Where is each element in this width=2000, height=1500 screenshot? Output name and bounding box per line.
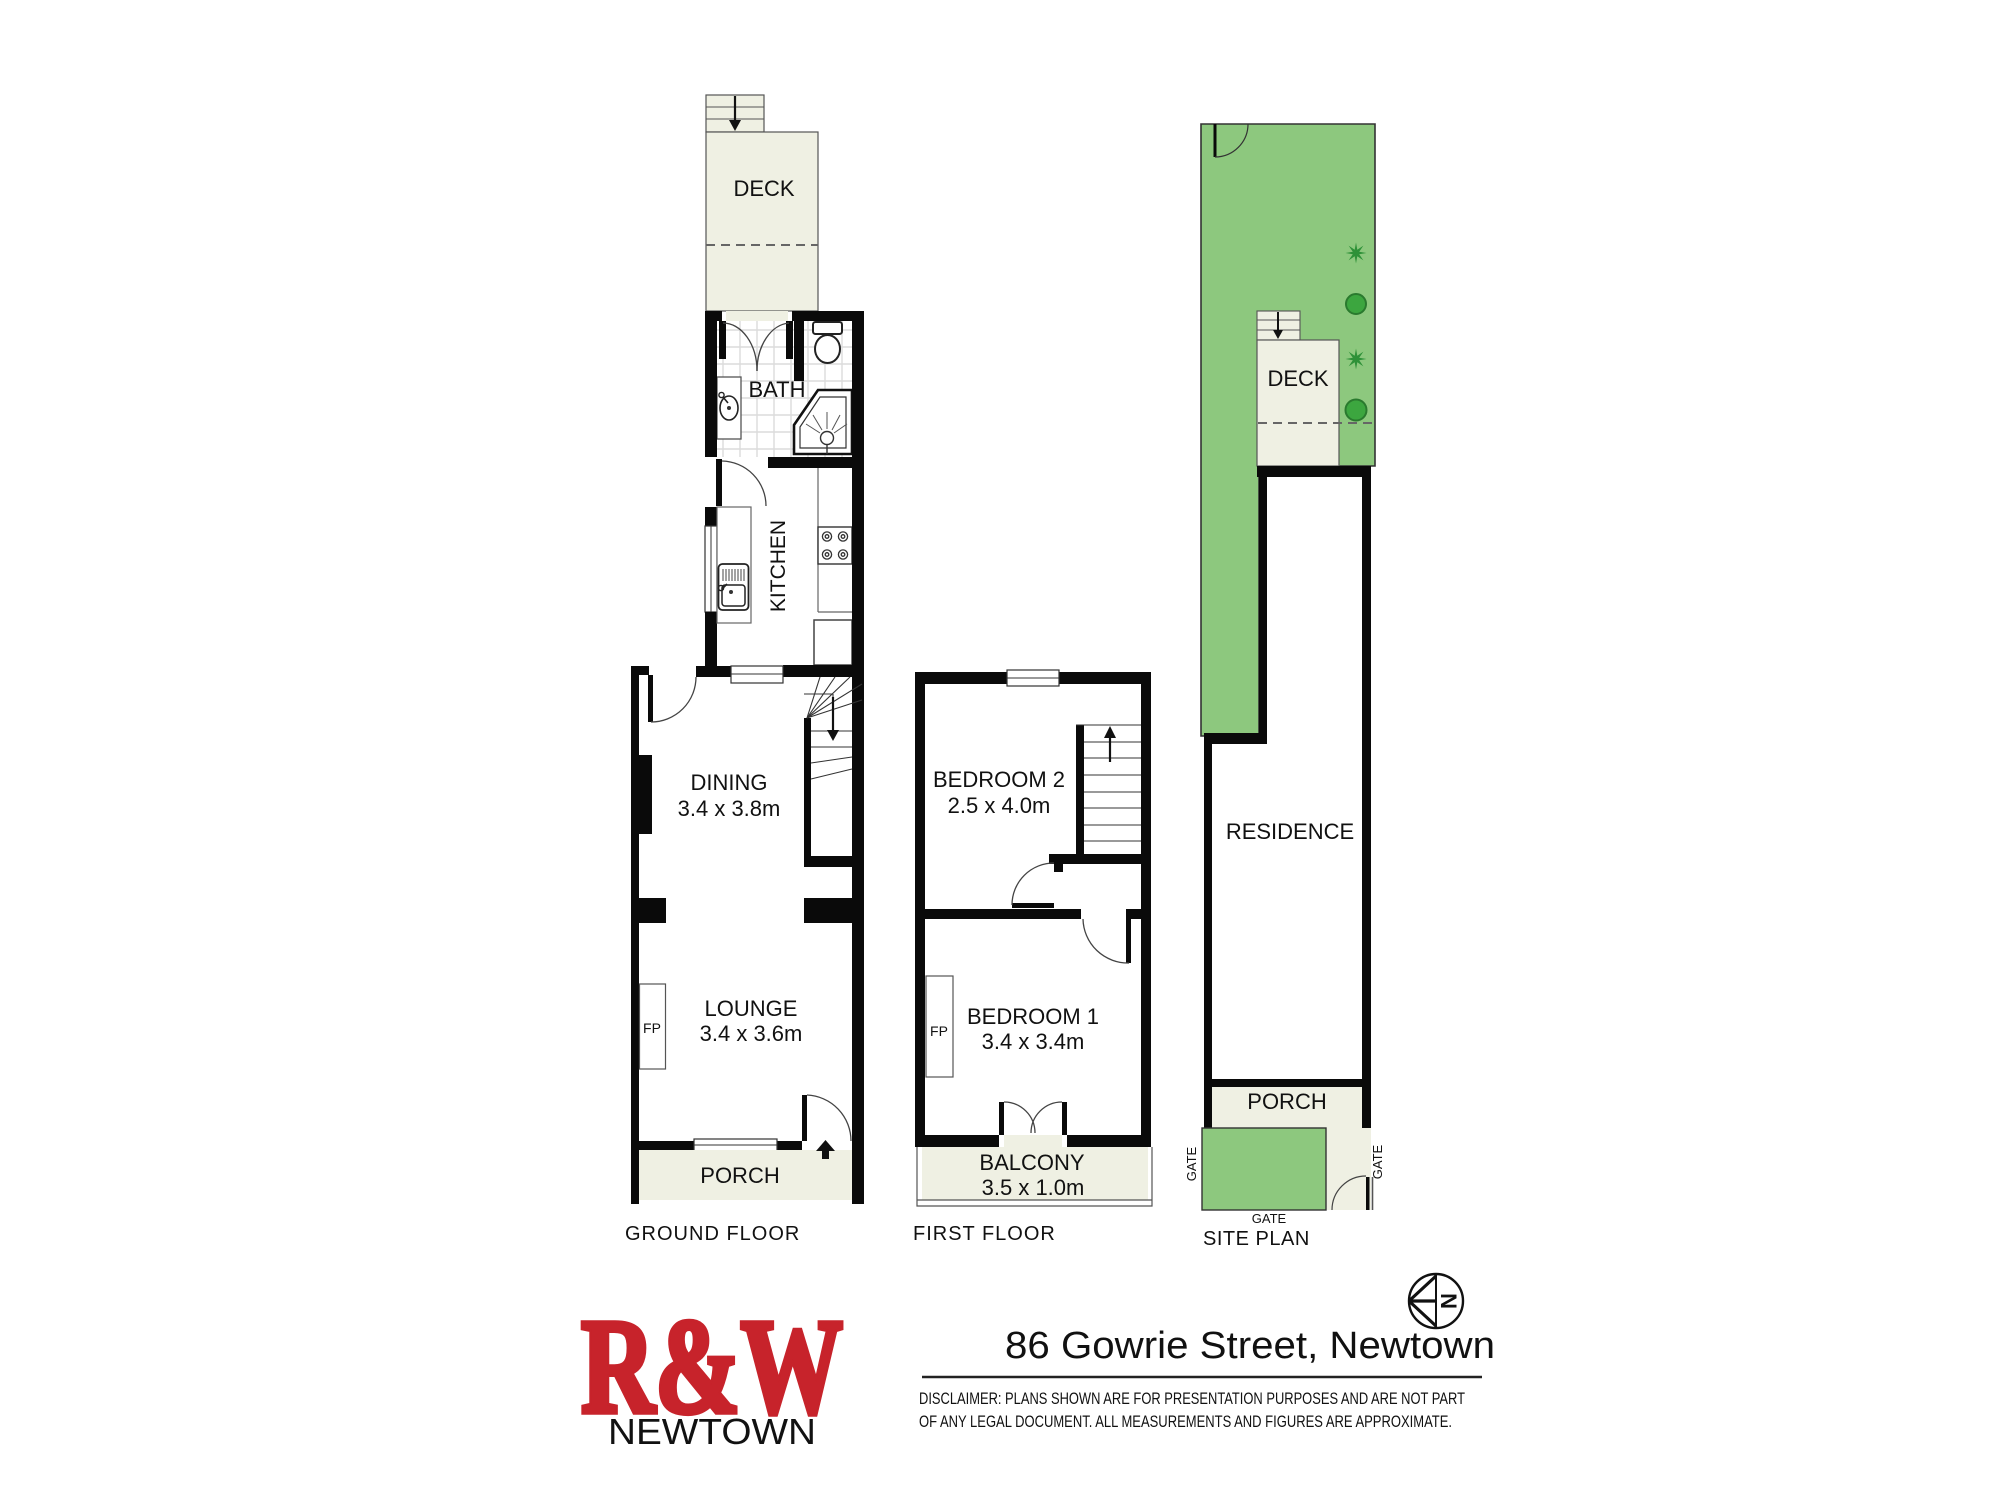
svg-text:BEDROOM 1: BEDROOM 1 [967, 1004, 1099, 1029]
svg-text:FP: FP [643, 1020, 661, 1036]
svg-text:KITCHEN: KITCHEN [767, 520, 790, 612]
svg-text:PORCH: PORCH [1247, 1089, 1326, 1114]
svg-text:PORCH: PORCH [700, 1163, 779, 1188]
svg-text:3.4 x 3.6m: 3.4 x 3.6m [700, 1021, 803, 1046]
svg-text:FP: FP [930, 1023, 948, 1039]
svg-text:RESIDENCE: RESIDENCE [1226, 819, 1354, 844]
svg-text:NEWTOWN: NEWTOWN [608, 1411, 816, 1452]
svg-text:BEDROOM 2: BEDROOM 2 [933, 767, 1065, 792]
svg-text:86 Gowrie Street, Newtown: 86 Gowrie Street, Newtown [1005, 1325, 1495, 1367]
svg-text:BATH: BATH [748, 377, 805, 402]
svg-text:FIRST FLOOR: FIRST FLOOR [913, 1223, 1056, 1245]
svg-text:DECK: DECK [1267, 366, 1328, 391]
svg-text:GATE: GATE [1370, 1144, 1385, 1179]
svg-text:LOUNGE: LOUNGE [705, 996, 798, 1021]
svg-text:3.4 x 3.8m: 3.4 x 3.8m [678, 796, 781, 821]
svg-text:3.5 x 1.0m: 3.5 x 1.0m [982, 1175, 1085, 1200]
svg-text:2.5 x 4.0m: 2.5 x 4.0m [948, 793, 1051, 818]
svg-text:BALCONY: BALCONY [979, 1150, 1084, 1175]
svg-text:GATE: GATE [1252, 1211, 1287, 1226]
svg-text:OF ANY LEGAL DOCUMENT. ALL MEA: OF ANY LEGAL DOCUMENT. ALL MEASUREMENTS … [919, 1413, 1452, 1431]
svg-text:SITE PLAN: SITE PLAN [1203, 1228, 1310, 1250]
svg-text:GATE: GATE [1184, 1146, 1199, 1181]
svg-text:DISCLAIMER: PLANS SHOWN ARE F: DISCLAIMER: PLANS SHOWN ARE FOR PRESENTA… [919, 1390, 1465, 1408]
svg-text:3.4 x 3.4m: 3.4 x 3.4m [982, 1029, 1085, 1054]
svg-text:N: N [1437, 1293, 1462, 1309]
svg-text:GROUND FLOOR: GROUND FLOOR [625, 1223, 800, 1245]
svg-text:DINING: DINING [691, 770, 768, 795]
svg-text:DECK: DECK [733, 176, 794, 201]
